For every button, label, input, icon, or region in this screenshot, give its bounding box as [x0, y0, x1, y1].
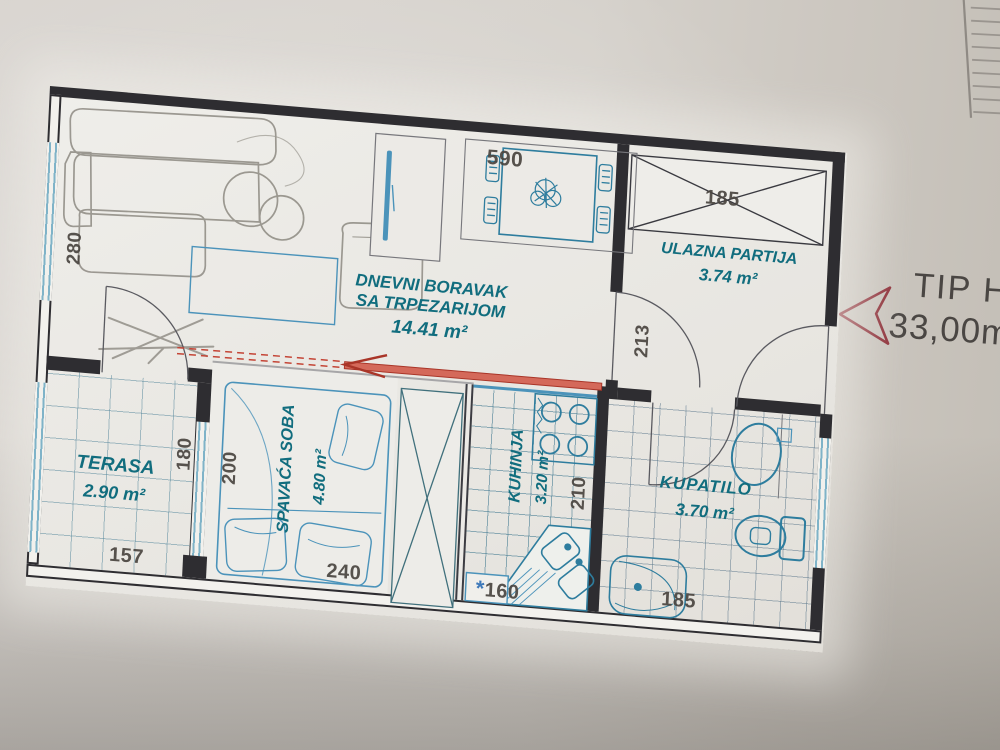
type-label: TIP H [912, 266, 1000, 313]
dim-terrace-right: 180 [174, 437, 195, 472]
dim-entrance-closet: 185 [704, 187, 740, 210]
bedroom-wardrobe [391, 388, 463, 607]
door-entry [737, 319, 829, 414]
tv-cabinet [370, 133, 446, 261]
floor-plan: 590 280 185 213 180 157 200 240 *160 210… [26, 86, 848, 653]
room-label-terrace: TERASA 2.90 m² [58, 450, 172, 508]
dim-bedroom-bottom: 240 [326, 561, 362, 584]
coffee-table [189, 246, 338, 324]
dim-kitchen-bottom: *160 [475, 577, 520, 603]
type-arrow-icon [834, 278, 899, 352]
dim-kitchen-right: 210 [569, 476, 590, 511]
plan-drawing-layer [26, 86, 848, 653]
red-annotation-line [177, 338, 603, 396]
dim-living-left: 280 [64, 231, 85, 266]
pencil-x-sketch [99, 311, 215, 369]
adjacent-sheet-edge [943, 0, 1000, 127]
door-living-hall [612, 292, 704, 387]
dim-living-top: 590 [486, 147, 523, 171]
dim-bathroom-bottom: 185 [661, 589, 697, 612]
dim-entrance-depth: 213 [632, 324, 653, 359]
dim-bedroom-left: 200 [220, 451, 241, 486]
dim-terrace-bottom: 157 [109, 545, 145, 568]
pillows [222, 393, 386, 588]
floor-plan-photo: TIP H 33,00m2 [0, 0, 1000, 750]
type-total-area: 33,00m2 [887, 306, 1000, 356]
bed [216, 382, 391, 589]
